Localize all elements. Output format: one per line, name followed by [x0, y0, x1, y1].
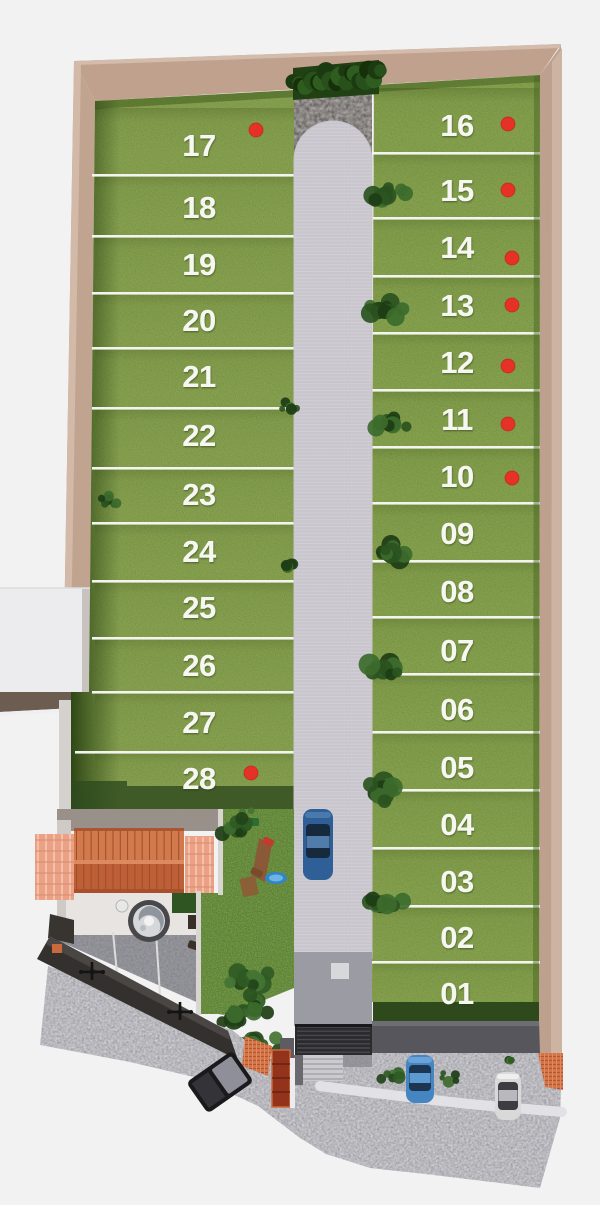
svg-text:10: 10	[440, 459, 473, 494]
svg-text:01: 01	[440, 976, 474, 1011]
svg-text:23: 23	[182, 477, 216, 512]
svg-text:04: 04	[440, 807, 475, 842]
svg-text:08: 08	[440, 574, 474, 609]
svg-text:12: 12	[440, 345, 473, 380]
svg-text:02: 02	[440, 920, 473, 955]
svg-text:16: 16	[440, 108, 474, 143]
svg-text:26: 26	[182, 648, 216, 683]
svg-text:05: 05	[440, 750, 474, 785]
svg-text:07: 07	[440, 633, 473, 668]
svg-text:03: 03	[440, 864, 474, 899]
svg-text:06: 06	[440, 692, 474, 727]
svg-text:18: 18	[182, 190, 216, 225]
svg-text:17: 17	[182, 128, 215, 163]
svg-text:15: 15	[440, 173, 474, 208]
svg-text:21: 21	[182, 359, 216, 394]
svg-text:14: 14	[440, 230, 475, 265]
svg-text:19: 19	[182, 247, 216, 282]
svg-text:13: 13	[440, 288, 474, 323]
svg-text:09: 09	[440, 516, 474, 551]
svg-text:20: 20	[182, 303, 215, 338]
svg-text:28: 28	[182, 761, 216, 796]
svg-text:27: 27	[182, 705, 215, 740]
svg-text:25: 25	[182, 590, 216, 625]
svg-text:24: 24	[182, 534, 217, 569]
svg-text:11: 11	[441, 402, 473, 437]
svg-text:22: 22	[182, 418, 215, 453]
